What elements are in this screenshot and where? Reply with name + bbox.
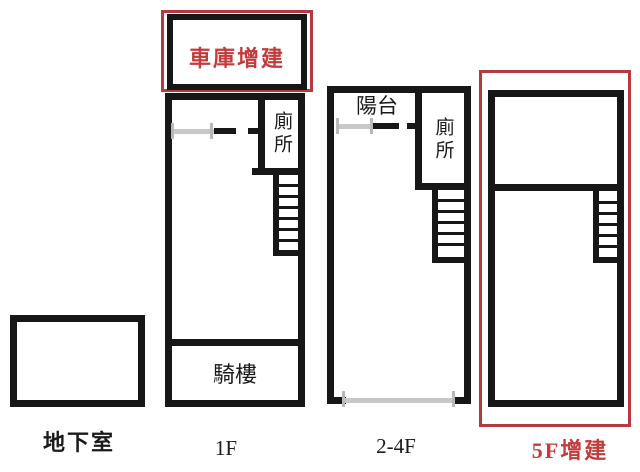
- f1-stairs-bottom: [273, 250, 298, 256]
- f24-stair-rung: [438, 232, 464, 235]
- f5-stair-rung: [599, 234, 617, 237]
- f5-right-wall: [617, 90, 624, 407]
- f1-toilet-label: 廁所: [265, 102, 298, 166]
- f1-arcade-divider-wall: [172, 339, 298, 346]
- f24-bottom-opening-symbol: [343, 398, 455, 403]
- f5-left-wall: [488, 90, 495, 407]
- f1-left-wall: [165, 93, 172, 407]
- floor2-4-caption: 2-4F: [358, 434, 434, 458]
- f1-toilet-left-wall: [258, 100, 265, 175]
- f1-stairs-rail: [273, 175, 279, 256]
- f1-stair-rung: [279, 206, 298, 209]
- f1-window-tick-left: [171, 123, 174, 139]
- floor1-caption: 1F: [190, 436, 262, 460]
- f1-stair-rung: [279, 239, 298, 242]
- f24-stair-rung: [438, 199, 464, 202]
- f24-bottom-tick-left: [342, 391, 345, 407]
- f5-top-wall: [488, 90, 624, 97]
- f5-stair-rung: [599, 201, 617, 204]
- f24-top-wall: [327, 86, 471, 93]
- f1-stair-rung: [279, 184, 298, 187]
- f1-interior-wall-dash: [248, 128, 258, 134]
- f5-stair-rung: [599, 212, 617, 215]
- f24-balcony-label: 陽台: [336, 93, 418, 119]
- f1-stair-rung: [279, 217, 298, 220]
- f24-toilet-left-wall: [415, 93, 422, 190]
- f24-stair-rung: [438, 221, 464, 224]
- f1-bottom-wall: [165, 400, 305, 407]
- f5-addition-red-outline: [479, 70, 631, 427]
- f1-right-wall: [298, 93, 305, 407]
- f24-stairs-bottom: [432, 257, 464, 263]
- f1-toilet-bottom-wall: [252, 168, 305, 175]
- f24-left-wall: [327, 86, 334, 404]
- f1-stair-rung: [279, 195, 298, 198]
- f1-window-tick-right: [210, 123, 213, 139]
- f1-window-symbol: [172, 129, 214, 134]
- f24-right-wall: [464, 86, 471, 404]
- f24-window-tick-right: [370, 118, 373, 134]
- f1-stair-rung: [279, 228, 298, 231]
- floor5-addition-caption: 5F增建: [518, 438, 622, 464]
- f24-stair-rung: [438, 243, 464, 246]
- basement-outline: [10, 315, 145, 407]
- f5-stairs-bottom: [593, 257, 617, 263]
- f24-window-symbol: [337, 124, 373, 129]
- f5-stair-rung: [599, 223, 617, 226]
- f1-top-wall: [165, 93, 305, 100]
- f5-interior-divider-wall: [495, 184, 617, 191]
- f24-stair-rung: [438, 210, 464, 213]
- garage-addition-label: 車庫增建: [170, 44, 304, 74]
- f24-toilet-label: 廁所: [422, 102, 464, 178]
- floor-plan-diagram: 車庫增建 廁所 騎樓 陽台 廁所: [0, 0, 640, 472]
- basement-caption: 地下室: [18, 430, 140, 456]
- f1-interior-wall-segment: [214, 128, 236, 134]
- f5-stair-rung: [599, 245, 617, 248]
- f1-arcade-label: 騎樓: [172, 360, 298, 390]
- f5-bottom-wall: [488, 400, 624, 407]
- f24-toilet-bottom-wall: [415, 183, 471, 190]
- f24-window-tick-left: [336, 118, 339, 134]
- f24-bottom-tick-right: [452, 391, 455, 407]
- f24-balcony-wall-segment: [372, 123, 399, 129]
